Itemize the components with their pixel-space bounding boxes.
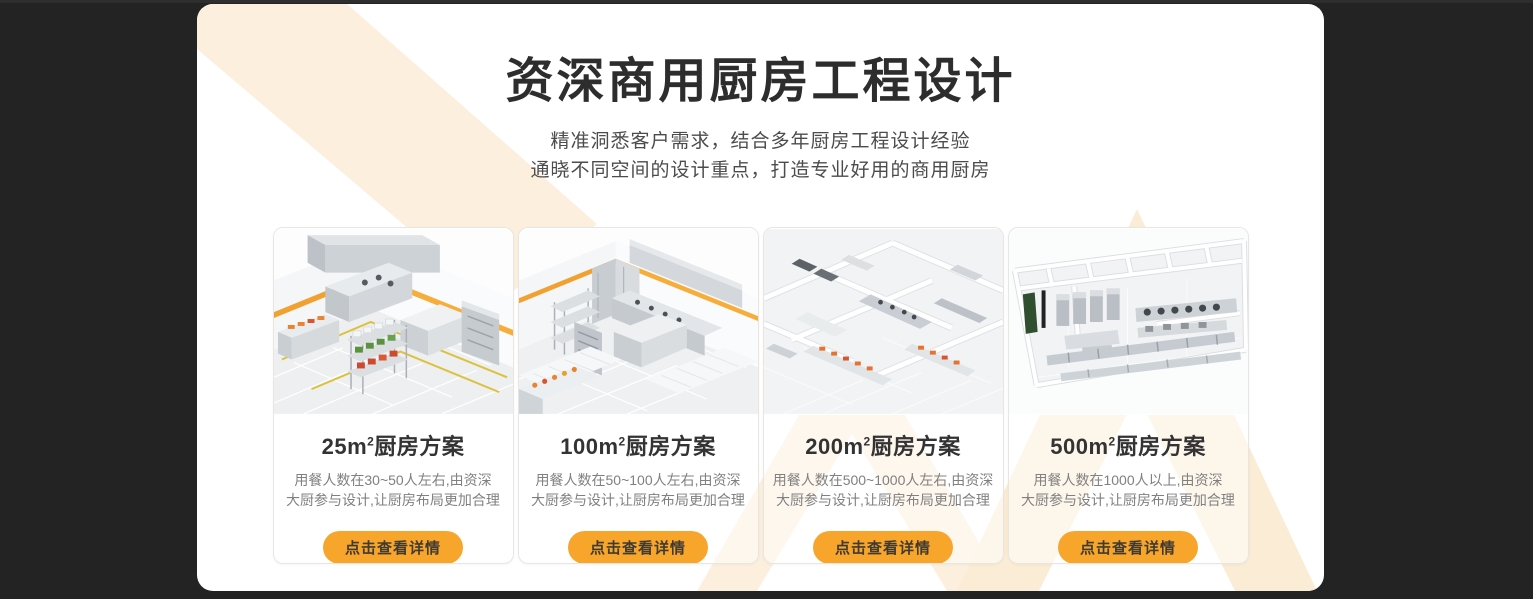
card-area: 25m <box>322 434 368 459</box>
page-title: 资深商用厨房工程设计 <box>197 4 1324 109</box>
card-area: 200m <box>805 434 863 459</box>
card-area: 500m <box>1050 434 1108 459</box>
desc-line-2: 大厨参与设计,让厨房布局更加合理 <box>531 492 745 508</box>
kitchen-plan-cards: 25m2厨房方案 用餐人数在30~50人左右,由资深大厨参与设计,让厨房布局更加… <box>197 227 1324 564</box>
card-title: 500m2厨房方案 <box>1009 429 1248 461</box>
card-body: 200m2厨房方案 用餐人数在500~1000人左右,由资深大厨参与设计,让厨房… <box>764 415 1003 564</box>
card-description: 用餐人数在50~100人左右,由资深大厨参与设计,让厨房布局更加合理 <box>519 470 758 510</box>
desc-line-1: 用餐人数在50~100人左右,由资深 <box>536 472 741 488</box>
top-divider <box>0 0 1533 3</box>
kitchen-render-100m2 <box>519 228 758 415</box>
card-area-sup: 2 <box>1109 435 1116 449</box>
desc-line-2: 大厨参与设计,让厨房布局更加合理 <box>286 492 500 508</box>
card-area-sup: 2 <box>864 435 871 449</box>
kitchen-plan-card-100m2: 100m2厨房方案 用餐人数在50~100人左右,由资深大厨参与设计,让厨房布局… <box>518 227 759 564</box>
page: 资深商用厨房工程设计 精准洞悉客户需求，结合多年厨房工程设计经验 通晓不同空间的… <box>0 0 1533 599</box>
view-details-button[interactable]: 点击查看详情 <box>568 531 708 564</box>
card-title: 100m2厨房方案 <box>519 429 758 461</box>
card-description: 用餐人数在30~50人左右,由资深大厨参与设计,让厨房布局更加合理 <box>274 470 513 510</box>
view-details-button[interactable]: 点击查看详情 <box>813 531 953 564</box>
desc-line-1: 用餐人数在500~1000人左右,由资深 <box>773 472 994 488</box>
card-body: 500m2厨房方案 用餐人数在1000人以上,由资深大厨参与设计,让厨房布局更加… <box>1009 415 1248 564</box>
kitchen-plan-card-25m2: 25m2厨房方案 用餐人数在30~50人左右,由资深大厨参与设计,让厨房布局更加… <box>273 227 514 564</box>
subtitle-line-1: 精准洞悉客户需求，结合多年厨房工程设计经验 <box>197 127 1324 156</box>
card-title-suffix: 厨房方案 <box>871 434 961 459</box>
desc-line-2: 大厨参与设计,让厨房布局更加合理 <box>776 492 990 508</box>
card-area-sup: 2 <box>619 435 626 449</box>
card-body: 25m2厨房方案 用餐人数在30~50人左右,由资深大厨参与设计,让厨房布局更加… <box>274 415 513 564</box>
desc-line-2: 大厨参与设计,让厨房布局更加合理 <box>1021 492 1235 508</box>
card-title-suffix: 厨房方案 <box>1116 434 1206 459</box>
view-details-button[interactable]: 点击查看详情 <box>1058 531 1198 564</box>
card-title: 25m2厨房方案 <box>274 429 513 461</box>
desc-line-1: 用餐人数在1000人以上,由资深 <box>1033 472 1222 488</box>
kitchen-plan-card-500m2: 500m2厨房方案 用餐人数在1000人以上,由资深大厨参与设计,让厨房布局更加… <box>1008 227 1249 564</box>
card-body: 100m2厨房方案 用餐人数在50~100人左右,由资深大厨参与设计,让厨房布局… <box>519 415 758 564</box>
kitchen-render-25m2 <box>274 228 513 415</box>
card-title-suffix: 厨房方案 <box>374 434 464 459</box>
card-title-suffix: 厨房方案 <box>626 434 716 459</box>
card-description: 用餐人数在1000人以上,由资深大厨参与设计,让厨房布局更加合理 <box>1009 470 1248 510</box>
subtitle-line-2: 通晓不同空间的设计重点，打造专业好用的商用厨房 <box>197 156 1324 185</box>
desc-line-1: 用餐人数在30~50人左右,由资深 <box>294 472 491 488</box>
card-description: 用餐人数在500~1000人左右,由资深大厨参与设计,让厨房布局更加合理 <box>764 470 1003 510</box>
kitchen-plan-card-200m2: 200m2厨房方案 用餐人数在500~1000人左右,由资深大厨参与设计,让厨房… <box>763 227 1004 564</box>
content-panel: 资深商用厨房工程设计 精准洞悉客户需求，结合多年厨房工程设计经验 通晓不同空间的… <box>197 4 1324 591</box>
card-area: 100m <box>560 434 618 459</box>
card-title: 200m2厨房方案 <box>764 429 1003 461</box>
kitchen-render-200m2 <box>764 228 1003 415</box>
page-subtitle: 精准洞悉客户需求，结合多年厨房工程设计经验 通晓不同空间的设计重点，打造专业好用… <box>197 127 1324 185</box>
kitchen-render-500m2 <box>1009 228 1248 415</box>
view-details-button[interactable]: 点击查看详情 <box>323 531 463 564</box>
